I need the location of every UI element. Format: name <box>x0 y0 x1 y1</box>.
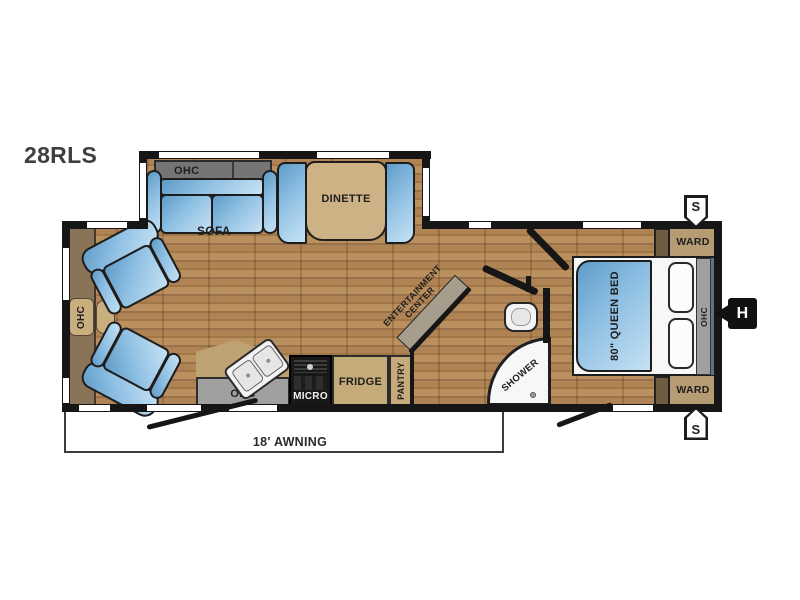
front-overhead-cabinet: OHC <box>69 298 94 336</box>
dinette-bench-right <box>385 162 415 244</box>
bathroom-wall-vertical <box>543 288 550 343</box>
window <box>78 404 111 412</box>
sofa-label: SOFA <box>197 224 231 238</box>
hitch-label: H <box>737 305 749 323</box>
pantry: PANTRY <box>389 355 412 406</box>
window <box>468 221 492 229</box>
window <box>139 162 147 219</box>
pantry-label: PANTRY <box>396 362 406 400</box>
window <box>62 377 70 404</box>
entry-door-opening <box>146 404 202 412</box>
bathroom-door-stub <box>526 276 531 292</box>
bed-label: 80" QUEEN BED <box>609 261 621 371</box>
kitchen-bath-divider-wall <box>410 352 414 406</box>
range-burner <box>307 364 313 370</box>
awning-label: 18' AWNING <box>230 435 350 449</box>
window <box>62 247 70 301</box>
window <box>422 167 430 217</box>
shower-label: SHOWER <box>500 357 541 394</box>
awning-line <box>64 451 504 453</box>
dinette-table: DINETTE <box>305 161 387 241</box>
fridge-label: FRIDGE <box>334 376 387 388</box>
speaker-bottom-label: S <box>684 419 708 439</box>
microwave-range: MICRO <box>289 355 332 406</box>
range-burners <box>294 376 327 390</box>
floorplan-28rls: 28RLS OHC SOFA DINETTE OHC OHC <box>0 0 800 600</box>
wardrobe-bottom: WARD <box>668 374 718 406</box>
bed-pillow <box>668 262 694 313</box>
queen-bed <box>572 256 700 376</box>
window <box>158 151 260 159</box>
bedroom-door-opening <box>612 404 654 412</box>
toilet-lid <box>511 308 531 326</box>
ward-bottom-label: WARD <box>676 384 709 396</box>
hitch-marker: H <box>715 297 759 330</box>
wall-top-right <box>422 221 722 229</box>
bed-pillow <box>668 318 694 369</box>
shower-drain <box>530 392 536 398</box>
window <box>582 221 642 229</box>
window <box>316 151 390 159</box>
awning-bracket-right <box>502 412 504 453</box>
micro-label: MICRO <box>291 391 330 402</box>
front-ohc-label: OHC <box>76 305 87 328</box>
sofa-arm-right <box>262 170 278 234</box>
speaker-top-label: S <box>684 196 708 216</box>
bedroom-ohc-label: OHC <box>699 307 709 327</box>
awning-bracket-left <box>64 412 66 453</box>
dinette-label: DINETTE <box>307 193 385 205</box>
dinette-bench-left <box>277 162 307 244</box>
ward-top-label: WARD <box>676 236 709 248</box>
wardrobe-top: WARD <box>668 226 718 258</box>
bedroom-overhead-cabinet: OHC <box>696 258 711 375</box>
fridge: FRIDGE <box>332 355 389 406</box>
model-label: 28RLS <box>24 142 97 169</box>
window <box>86 221 128 229</box>
toilet <box>504 302 538 332</box>
